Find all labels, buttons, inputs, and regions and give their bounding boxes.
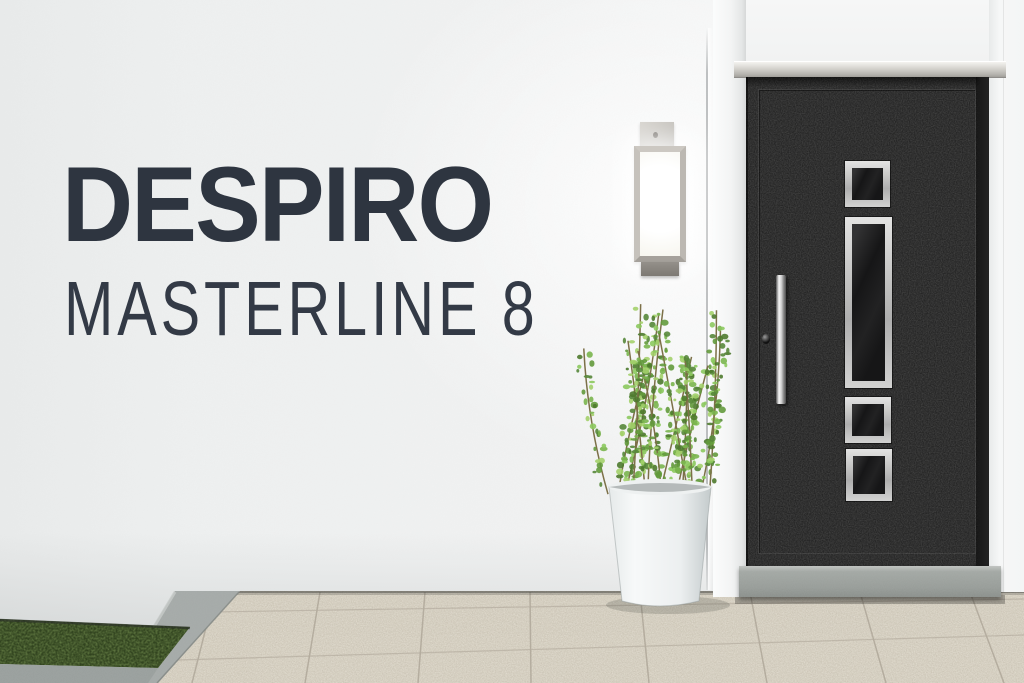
pavement-corner	[0, 660, 170, 683]
walkway-curb	[110, 585, 250, 683]
door-glass-panel-tall	[845, 217, 892, 388]
door-top-trim	[734, 61, 1006, 78]
planter-pot	[609, 479, 711, 606]
entrance-scene: DESPIRO MASTERLINE 8	[0, 0, 1024, 683]
pot-ground-shadow	[606, 596, 730, 614]
door-handle	[776, 275, 786, 404]
door-frame-top	[713, 0, 1024, 62]
door-top-shadow	[746, 77, 989, 87]
door-glass-panel-bottom	[846, 449, 892, 501]
door-frame-right-groove	[1003, 0, 1004, 592]
door-left-edge	[746, 77, 748, 566]
lamp-diffuser	[640, 152, 680, 256]
brand-title: DESPIRO	[62, 158, 614, 250]
entrance-recess-highlight	[708, 28, 713, 590]
door-threshold	[739, 566, 1001, 597]
tile-joints	[110, 592, 1024, 683]
door-glass-mid	[852, 404, 884, 436]
door-glass-panel-mid	[845, 397, 891, 443]
door-right-rebate	[976, 77, 989, 566]
grass-strip	[0, 615, 200, 673]
door-frame-right	[989, 0, 1024, 592]
door-glass-bottom	[853, 456, 885, 494]
door-lock-cylinder	[762, 334, 770, 344]
lamp-mount-bottom	[641, 262, 679, 276]
door-glass-panel-top	[845, 161, 890, 207]
wall-lamp	[634, 146, 686, 262]
model-subtitle: MASTERLINE 8	[64, 276, 603, 342]
door-glass-top	[852, 168, 883, 200]
walkway-tiles	[110, 585, 1024, 683]
lamp-screw	[653, 132, 658, 138]
door-glass-tall	[852, 224, 885, 381]
door-frame-left	[713, 0, 746, 597]
